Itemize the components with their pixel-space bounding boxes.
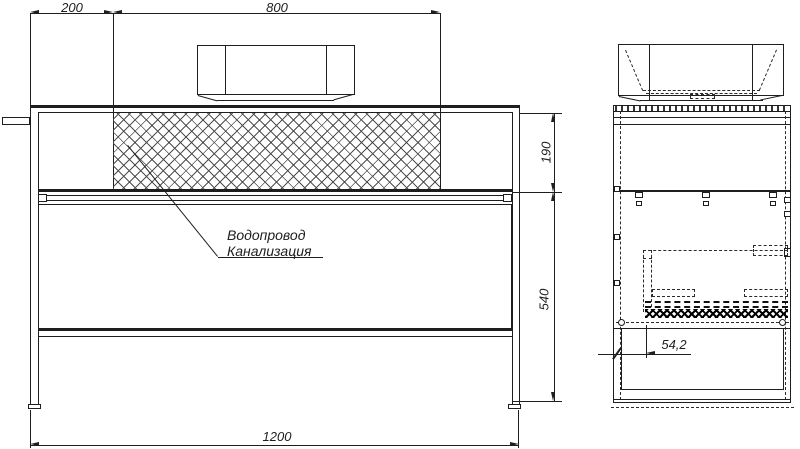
drawer-rail xyxy=(46,195,505,201)
countertop-side-line xyxy=(614,111,790,112)
bottom-line xyxy=(614,399,791,400)
clip xyxy=(635,192,643,198)
slide-track-hatch xyxy=(645,309,788,318)
clip xyxy=(770,201,776,206)
drawing-canvas: 200 800 1 xyxy=(0,0,800,449)
fastener xyxy=(614,280,620,286)
label-water-supply: Водопровод xyxy=(227,227,305,243)
basin-bowl-hidden xyxy=(643,90,760,91)
arrowhead xyxy=(551,192,555,201)
extension-line xyxy=(30,13,31,105)
dim-800: 800 xyxy=(247,0,307,15)
arrowhead xyxy=(104,10,113,14)
arrowhead xyxy=(30,10,39,14)
dim-1200: 1200 xyxy=(237,429,317,444)
leg-left-outer xyxy=(30,107,31,405)
clip xyxy=(703,201,709,206)
extension-line xyxy=(440,13,441,189)
arrowhead xyxy=(431,10,440,14)
label-sewerage: Канализация xyxy=(227,243,311,259)
slide-rail-hidden xyxy=(744,289,788,297)
slide-hidden-bold xyxy=(645,306,788,308)
basin-base-slant xyxy=(198,95,218,102)
bottom-panel-line xyxy=(621,389,784,390)
drawer-back-hidden xyxy=(643,250,652,259)
washbasin-front xyxy=(197,45,355,95)
basin-base-line xyxy=(640,100,763,101)
divider-line xyxy=(38,189,512,192)
dim-190: 190 xyxy=(539,133,554,173)
dim-200: 200 xyxy=(42,0,102,15)
arrowhead xyxy=(551,113,555,122)
fastener xyxy=(784,197,791,203)
arrowhead xyxy=(510,442,519,446)
drain-hidden xyxy=(690,94,715,99)
basin-wall-line xyxy=(225,46,226,95)
bottom-hidden-line xyxy=(611,407,794,408)
apron-line xyxy=(614,117,790,118)
basin-base-line xyxy=(217,100,334,101)
drawer-bottom-hidden xyxy=(616,322,789,323)
fastener xyxy=(614,186,620,192)
arrowhead xyxy=(30,442,39,446)
clip xyxy=(769,192,777,198)
fastener xyxy=(614,234,620,240)
leg-right-inner xyxy=(512,112,513,405)
dimension-line-54 xyxy=(598,354,691,355)
dimension-line-right xyxy=(554,113,555,401)
arrowhead xyxy=(113,10,122,14)
arrowhead xyxy=(551,392,555,401)
leg-right-outer xyxy=(519,107,520,405)
clip xyxy=(702,192,710,198)
rail-end-block xyxy=(503,194,512,202)
slide-hidden-bold xyxy=(645,301,788,303)
fastener xyxy=(784,211,791,217)
basin-base-slant xyxy=(619,96,641,102)
panel-edge xyxy=(621,329,622,390)
foot-right xyxy=(508,404,521,409)
slide-rail-hidden xyxy=(652,289,695,297)
dim-54-2: 54,2 xyxy=(650,337,698,352)
foot-left xyxy=(28,404,41,409)
hatch-area xyxy=(113,113,440,189)
countertop-front xyxy=(30,105,520,108)
slide-detail-hidden xyxy=(753,245,788,256)
wall-bracket xyxy=(2,117,30,125)
arrowhead xyxy=(551,183,555,192)
drawer-front xyxy=(38,204,512,331)
rail-end-block xyxy=(38,194,47,202)
roller xyxy=(779,319,786,326)
drawer-back-hidden xyxy=(643,250,644,312)
dimension-line-bottom xyxy=(30,445,519,446)
extension-line xyxy=(513,401,562,402)
dim-540: 540 xyxy=(537,280,552,320)
bottom-stretcher xyxy=(38,336,512,337)
panel-edge xyxy=(783,329,784,390)
roller xyxy=(618,319,625,326)
basin-wall-line xyxy=(326,46,327,95)
clip xyxy=(636,201,642,206)
shelf-line xyxy=(614,328,791,329)
extension-line xyxy=(520,113,562,114)
apron-line xyxy=(614,124,790,125)
